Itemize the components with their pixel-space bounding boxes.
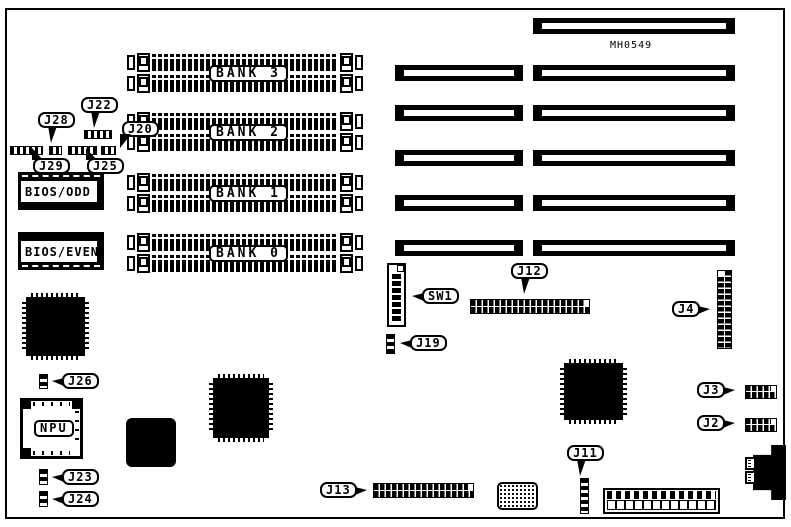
jumper-block-j19: [386, 334, 395, 354]
callout-tail: [521, 277, 530, 294]
callout-tail: [723, 387, 735, 395]
chip-dashed-edge: [22, 175, 100, 177]
jumper-block-j23: [39, 469, 48, 485]
expansion-slot-ext-2: [395, 105, 523, 121]
plcc-ic: [126, 418, 176, 467]
mini-connector-2: [745, 471, 756, 484]
callout-j29: J29: [33, 158, 70, 174]
jumper-block-j28: [49, 146, 62, 155]
bank1-label: BANK 1: [209, 185, 288, 202]
callout-tail: [400, 340, 412, 348]
callout-j28: J28: [38, 112, 75, 128]
dip-switch-sw1: [387, 263, 406, 327]
expansion-slot-ext-4: [395, 195, 523, 211]
expansion-slot-ext-3: [395, 150, 523, 166]
callout-tail: [91, 111, 100, 128]
callout-j19: J19: [410, 335, 447, 351]
expansion-slot-main-4: [533, 195, 735, 211]
qfp-ic-2: [209, 374, 273, 442]
callout-sw1: SW1: [422, 288, 459, 304]
power-connector: [603, 488, 720, 514]
callout-j12: J12: [511, 263, 548, 279]
pin-header-j2: [745, 418, 777, 432]
chip-dashed-edge: [22, 265, 100, 267]
jumper-block-j22: [84, 130, 112, 139]
pin-header-j3: [745, 385, 777, 399]
callout-tail: [48, 126, 57, 143]
callout-j26: J26: [62, 373, 99, 389]
jumper-block-j20: [101, 146, 116, 155]
callout-tail: [577, 459, 586, 476]
callout-j3: J3: [697, 382, 725, 398]
jumper-block-j11: [580, 478, 589, 514]
jumper-block-j26: [39, 374, 48, 389]
callout-j2: J2: [697, 415, 725, 431]
bank3-label: BANK 3: [209, 65, 288, 82]
callout-j11: J11: [567, 445, 604, 461]
speaker: [497, 482, 538, 510]
callout-j20: J20: [122, 121, 159, 137]
motherboard-diagram: BANK 3 BANK 2 BANK 1 BANK 0 MH0549 J22 J…: [0, 0, 791, 527]
callout-j13: J13: [320, 482, 357, 498]
callout-tail: [32, 148, 43, 160]
pin-header-j12: [470, 299, 590, 314]
bios-even-chip: BIOS/EVEN: [18, 232, 104, 270]
callout-tail: [723, 420, 735, 428]
npu-label: NPU: [34, 420, 74, 437]
callout-j22: J22: [81, 97, 118, 113]
callout-tail: [120, 134, 131, 148]
jumper-block-j24: [39, 491, 48, 507]
qfp-ic-1: [22, 293, 89, 360]
expansion-slot-main-3: [533, 150, 735, 166]
bank2-label: BANK 2: [209, 124, 288, 141]
expansion-slot-main-5: [533, 240, 735, 256]
qfp-ic-3: [560, 359, 627, 424]
expansion-slot-main-1: [533, 65, 735, 81]
expansion-slot-main-2: [533, 105, 735, 121]
bios-odd-label: BIOS/ODD: [21, 181, 97, 202]
callout-j4: J4: [672, 301, 700, 317]
callout-j25: J25: [87, 158, 124, 174]
callout-tail: [355, 487, 367, 495]
pin-header-j13: [373, 483, 474, 498]
expansion-slot-8bit: [533, 18, 735, 34]
expansion-slot-ext-1: [395, 65, 523, 81]
callout-tail: [52, 496, 64, 504]
callout-tail: [698, 306, 710, 314]
bios-odd-chip: BIOS/ODD: [18, 172, 104, 210]
bios-even-label: BIOS/EVEN: [21, 241, 97, 262]
callout-tail: [52, 474, 64, 482]
board-part-number: MH0549: [610, 40, 652, 51]
pin-header-j4: [717, 270, 732, 349]
bank0-label: BANK 0: [209, 245, 288, 262]
callout-j24: J24: [62, 491, 99, 507]
callout-tail: [52, 378, 64, 386]
callout-j23: J23: [62, 469, 99, 485]
callout-tail: [86, 148, 97, 160]
expansion-slot-ext-5: [395, 240, 523, 256]
callout-tail: [412, 293, 424, 301]
mini-connector-1: [745, 457, 756, 470]
